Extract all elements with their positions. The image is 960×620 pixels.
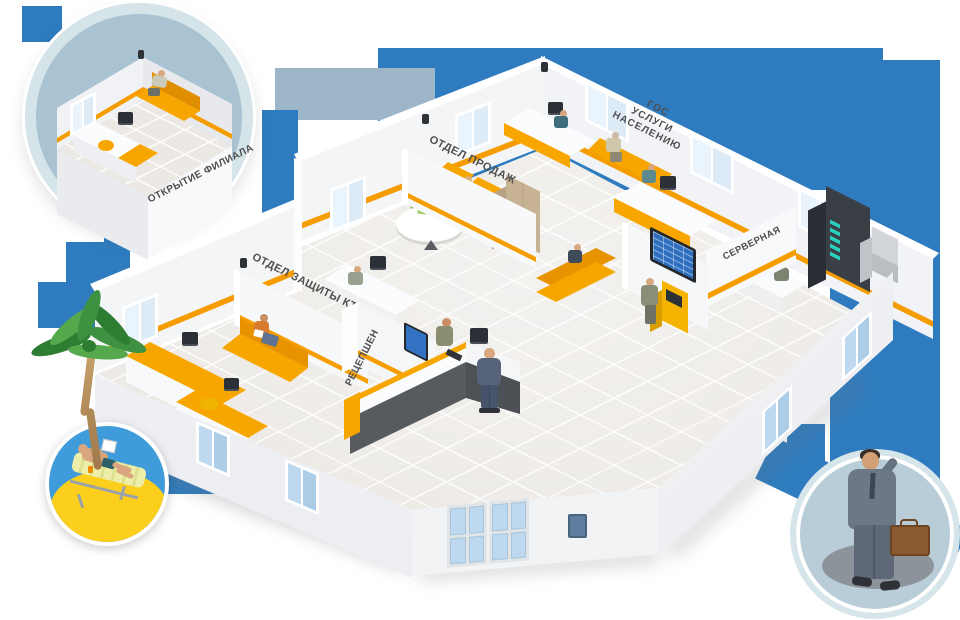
palm-crown xyxy=(82,340,96,352)
leftoffice-monitor-2 xyxy=(224,378,239,391)
backdrop-square-topleft xyxy=(22,6,62,42)
door-pane xyxy=(511,531,527,559)
businessman-shoe-1 xyxy=(851,576,872,588)
hall-sofa-person-torso xyxy=(568,250,582,263)
leftoffice-chair xyxy=(200,398,218,410)
visitor-suit-torso xyxy=(477,358,501,386)
door-pane xyxy=(450,537,466,565)
kiosk-visitor-torso xyxy=(641,285,658,306)
server-ac-side xyxy=(860,237,872,283)
door-pane xyxy=(492,503,508,531)
door-pane xyxy=(450,507,466,535)
receptionist-torso xyxy=(436,326,453,346)
server-rack-side xyxy=(808,202,826,289)
gov-clerk2-torso xyxy=(642,170,656,183)
branch-person-torso xyxy=(151,75,168,88)
businessman-legs xyxy=(854,525,894,579)
door-pane xyxy=(469,535,485,563)
palm-trunk-upper xyxy=(80,350,96,416)
gov-desk2-monitor xyxy=(660,176,676,190)
camera-icon-top-corner xyxy=(541,62,548,72)
callout-circle-vacation xyxy=(45,422,169,546)
entrance-door-right xyxy=(489,498,529,563)
branch-person-legs xyxy=(148,88,160,96)
door-pane xyxy=(469,506,485,534)
window-pane xyxy=(199,425,227,473)
reception-counter-monitor xyxy=(470,328,488,344)
kiosk-visitor-legs xyxy=(645,305,656,324)
window-pane xyxy=(333,179,363,229)
entrance-door-left xyxy=(447,502,487,567)
vacation-drink xyxy=(88,466,93,473)
branch-room-chair xyxy=(98,140,114,151)
businessman-shoe-2 xyxy=(880,580,901,591)
visitor-suit-legs xyxy=(481,385,498,409)
gov-visitor-legs xyxy=(610,152,622,162)
vacation-sand xyxy=(50,470,168,546)
gov-visitor-torso xyxy=(606,138,621,152)
window-pane xyxy=(458,105,488,153)
vacation-tablet xyxy=(101,439,117,454)
entrance-intercom-icon xyxy=(568,514,587,538)
businessman-figure xyxy=(796,455,954,613)
leftoffice-monitor-1 xyxy=(182,332,198,346)
branch-room-camera-icon xyxy=(138,50,144,59)
door-pane xyxy=(492,533,508,561)
visitor-suit-shoes xyxy=(479,408,500,413)
itsec-monitor xyxy=(370,256,386,270)
camera-icon-sales-wall xyxy=(422,114,429,124)
door-pane xyxy=(511,502,527,530)
office-isometric-scene: ОТКРЫТИЕ ФИЛИАЛА ГОС УСЛУГИ НАСЕЛЕНИЮ xyxy=(0,0,960,620)
gov-clerk1-torso xyxy=(554,116,568,128)
branch-room-monitor xyxy=(118,112,133,125)
itsec-clerk-torso xyxy=(348,272,363,285)
server-rack-leds xyxy=(830,220,840,265)
businessman-head xyxy=(862,452,879,470)
businessman-briefcase xyxy=(890,525,930,556)
window-pane xyxy=(288,463,316,511)
